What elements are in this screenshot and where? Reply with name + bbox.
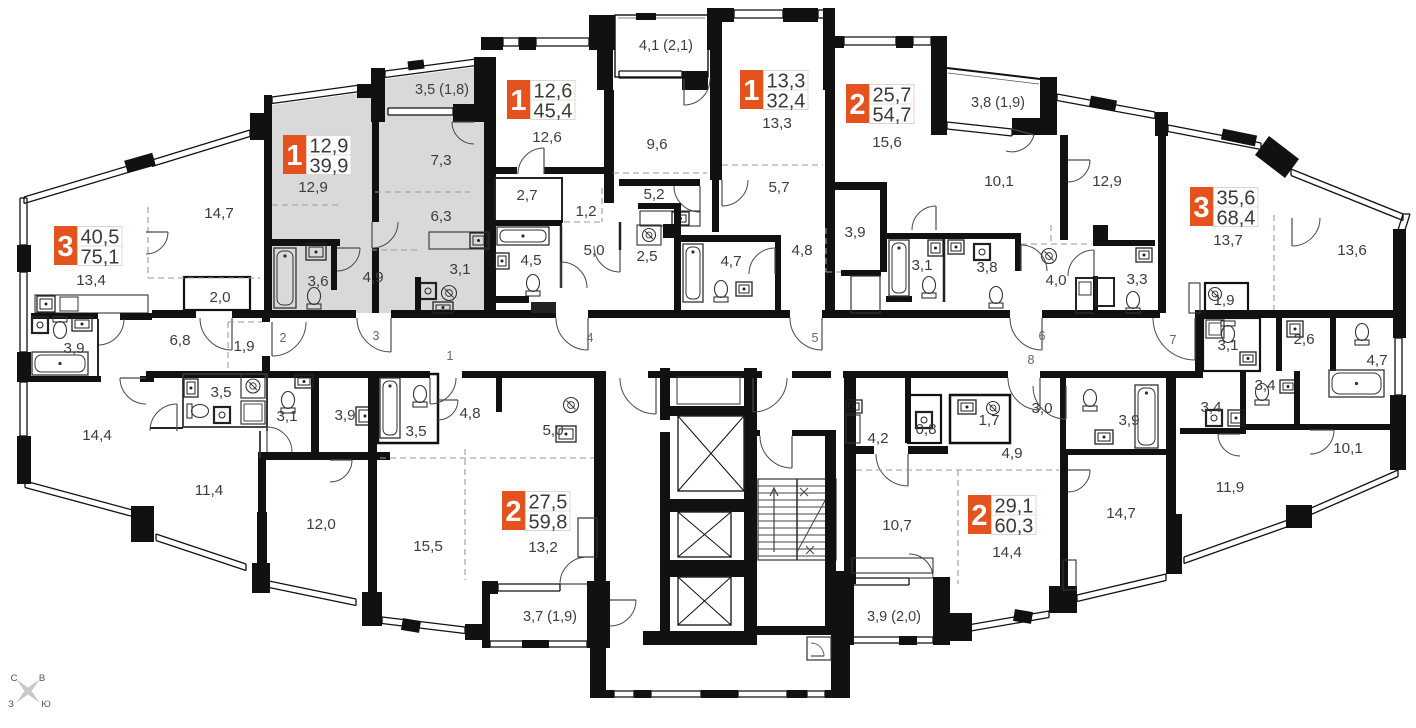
svg-text:60,3: 60,3: [995, 516, 1034, 538]
svg-text:12,0: 12,0: [306, 516, 336, 533]
svg-text:4,7: 4,7: [1366, 352, 1387, 369]
svg-text:С: С: [11, 673, 18, 684]
svg-text:6,8: 6,8: [169, 332, 190, 349]
svg-text:10,1: 10,1: [1333, 440, 1363, 457]
svg-text:2,5: 2,5: [636, 248, 657, 265]
svg-text:13,2: 13,2: [528, 539, 558, 556]
svg-text:3,4: 3,4: [1200, 399, 1221, 416]
svg-text:3,1: 3,1: [911, 257, 932, 274]
svg-text:12,9: 12,9: [298, 179, 328, 196]
svg-text:3,1: 3,1: [276, 408, 297, 425]
svg-text:4,7: 4,7: [720, 253, 741, 270]
svg-text:3: 3: [373, 329, 380, 343]
svg-text:13,4: 13,4: [76, 272, 106, 289]
svg-text:35,6: 35,6: [1217, 188, 1256, 210]
svg-text:3,5 (1,8): 3,5 (1,8): [415, 82, 469, 98]
svg-text:11,4: 11,4: [195, 482, 223, 499]
svg-text:39,9: 39,9: [310, 156, 349, 178]
svg-text:3,4: 3,4: [1254, 377, 1275, 394]
svg-text:В: В: [39, 673, 45, 684]
svg-text:3,9 (2,0): 3,9 (2,0): [867, 609, 921, 625]
svg-text:4,9: 4,9: [1001, 445, 1022, 462]
svg-text:13,6: 13,6: [1337, 242, 1367, 259]
svg-text:27,5: 27,5: [529, 492, 568, 514]
svg-text:2,0: 2,0: [209, 289, 230, 306]
svg-text:9,6: 9,6: [646, 136, 667, 153]
svg-text:13,3: 13,3: [767, 71, 806, 93]
svg-text:3,5: 3,5: [405, 423, 426, 440]
svg-text:10,7: 10,7: [882, 517, 912, 534]
svg-text:25,7: 25,7: [873, 85, 912, 107]
svg-text:13,7: 13,7: [1213, 232, 1243, 249]
svg-text:4: 4: [587, 331, 594, 345]
svg-text:2: 2: [849, 89, 865, 121]
svg-text:3: 3: [1193, 192, 1209, 224]
svg-text:4,9: 4,9: [362, 269, 383, 286]
svg-text:11,9: 11,9: [1216, 479, 1244, 496]
svg-text:4,8: 4,8: [459, 405, 480, 422]
svg-text:3,9: 3,9: [1118, 412, 1139, 429]
svg-text:12,9: 12,9: [310, 136, 349, 158]
svg-text:15,5: 15,5: [413, 538, 443, 555]
svg-text:5,2: 5,2: [643, 186, 664, 203]
svg-text:45,4: 45,4: [534, 101, 573, 123]
svg-text:13,3: 13,3: [762, 115, 792, 132]
svg-text:29,1: 29,1: [995, 496, 1034, 518]
svg-text:3,9: 3,9: [63, 340, 84, 357]
svg-text:5,7: 5,7: [768, 179, 789, 196]
svg-text:12,6: 12,6: [534, 81, 573, 103]
svg-text:5,0: 5,0: [583, 242, 604, 259]
svg-text:4,2: 4,2: [867, 430, 888, 447]
svg-text:59,8: 59,8: [529, 512, 568, 534]
svg-text:3,5: 3,5: [210, 384, 231, 401]
svg-text:4,0: 4,0: [1045, 272, 1066, 289]
svg-text:14,4: 14,4: [82, 427, 112, 444]
svg-text:68,4: 68,4: [1217, 208, 1256, 230]
svg-text:3,1: 3,1: [1217, 337, 1238, 354]
svg-text:5: 5: [812, 331, 819, 345]
svg-text:З: З: [8, 699, 14, 710]
svg-text:75,1: 75,1: [81, 247, 120, 269]
svg-text:14,7: 14,7: [1106, 505, 1136, 522]
svg-text:2: 2: [505, 496, 521, 528]
svg-text:1: 1: [286, 140, 302, 172]
svg-text:7: 7: [1170, 333, 1177, 347]
svg-text:32,4: 32,4: [767, 91, 806, 113]
svg-text:3,6: 3,6: [307, 273, 328, 290]
svg-text:54,7: 54,7: [873, 105, 912, 127]
svg-text:0,8: 0,8: [915, 421, 936, 438]
svg-text:2,6: 2,6: [1293, 331, 1314, 348]
svg-text:1,9: 1,9: [233, 338, 254, 355]
svg-text:3,8 (1,9): 3,8 (1,9): [971, 95, 1025, 111]
svg-text:Ю: Ю: [41, 699, 51, 710]
svg-text:1: 1: [743, 75, 759, 107]
svg-text:8: 8: [1028, 353, 1035, 367]
svg-text:3,3: 3,3: [1126, 271, 1147, 288]
svg-text:3,8: 3,8: [976, 259, 997, 276]
svg-text:5,0: 5,0: [542, 422, 563, 439]
svg-text:6: 6: [1039, 329, 1046, 343]
svg-text:4,8: 4,8: [791, 242, 812, 259]
svg-text:1: 1: [447, 349, 454, 363]
svg-text:3,7 (1,9): 3,7 (1,9): [523, 609, 577, 625]
svg-text:4,1 (2,1): 4,1 (2,1): [639, 38, 693, 54]
svg-text:15,6: 15,6: [872, 134, 902, 151]
svg-text:14,4: 14,4: [992, 544, 1022, 561]
svg-text:7,3: 7,3: [430, 152, 451, 169]
svg-text:4,5: 4,5: [520, 252, 541, 269]
svg-text:1,7: 1,7: [978, 412, 999, 429]
svg-text:10,1: 10,1: [984, 173, 1014, 190]
svg-text:2,7: 2,7: [516, 187, 537, 204]
svg-text:3,0: 3,0: [1031, 400, 1052, 417]
svg-text:3: 3: [57, 231, 73, 263]
svg-text:14,7: 14,7: [204, 205, 234, 222]
svg-text:3,9: 3,9: [844, 224, 865, 241]
svg-text:40,5: 40,5: [81, 227, 120, 249]
svg-text:3,9: 3,9: [334, 407, 355, 424]
svg-text:2: 2: [971, 500, 987, 532]
svg-text:1: 1: [510, 85, 526, 117]
svg-text:12,6: 12,6: [532, 129, 562, 146]
svg-text:1,9: 1,9: [1213, 292, 1234, 309]
svg-text:12,9: 12,9: [1092, 173, 1122, 190]
svg-text:1,2: 1,2: [575, 203, 596, 220]
svg-text:3,1: 3,1: [449, 261, 470, 278]
svg-text:6,3: 6,3: [430, 208, 451, 225]
svg-text:2: 2: [280, 331, 287, 345]
